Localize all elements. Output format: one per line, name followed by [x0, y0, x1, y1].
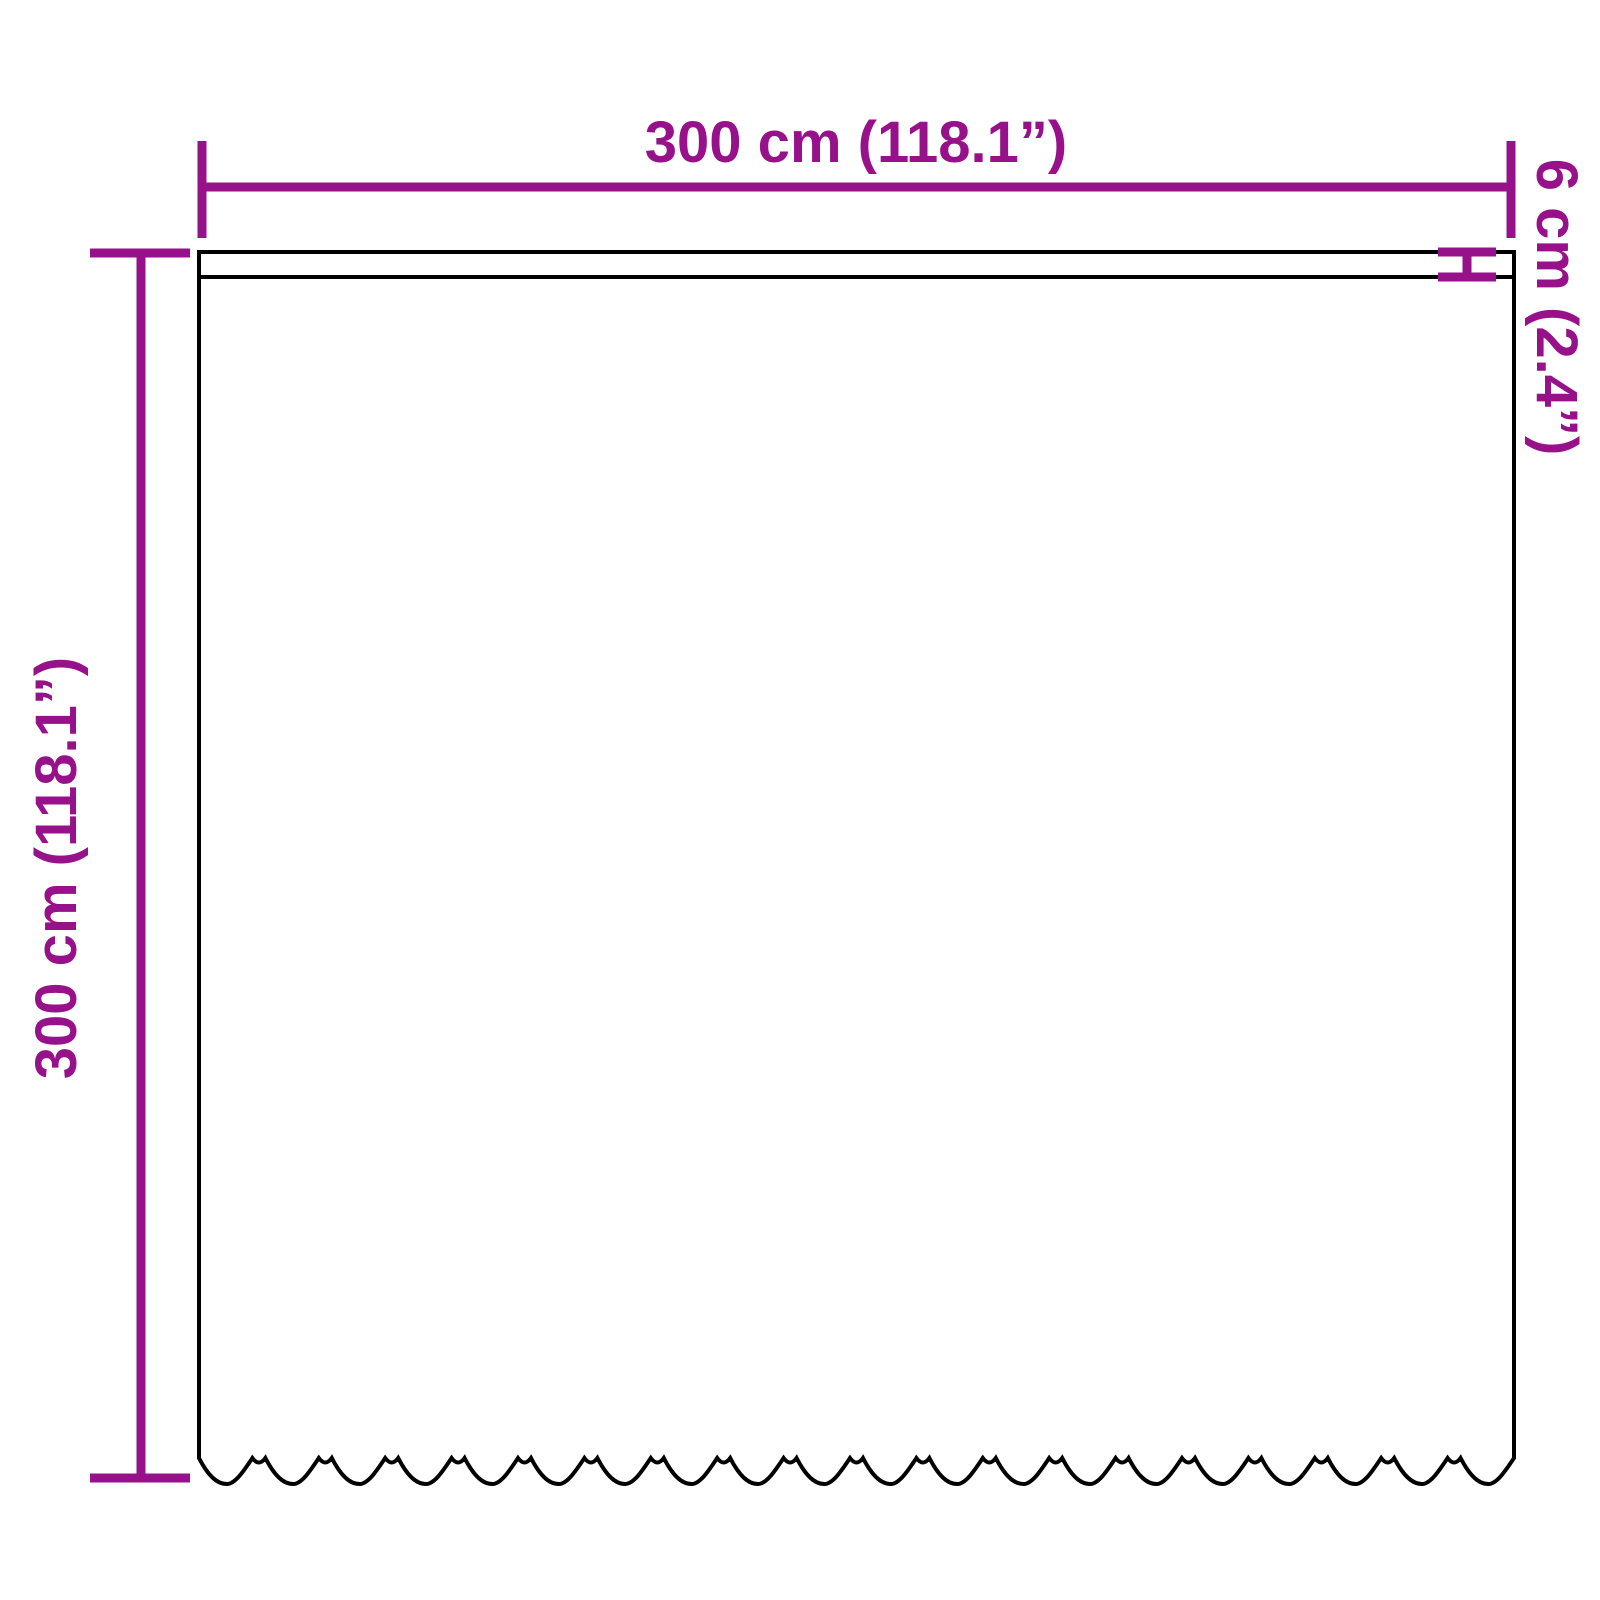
width-dimension-label: 300 cm (118.1”)	[645, 114, 1067, 172]
header-dimension-label: 6 cm (2.4”)	[1527, 159, 1585, 456]
curtain-outline	[199, 250, 1514, 1484]
height-dimension-label: 300 cm (118.1”)	[28, 657, 86, 1079]
curtain-drawing	[0, 0, 1600, 1600]
dimension-diagram: 300 cm (118.1”) 300 cm (118.1”) 6 cm (2.…	[0, 0, 1600, 1600]
header-dimension-marker	[1438, 252, 1496, 277]
dimension-lines	[90, 141, 1511, 1478]
height-dimension-line	[90, 253, 190, 1478]
scalloped-hem-edge	[199, 1458, 1514, 1484]
